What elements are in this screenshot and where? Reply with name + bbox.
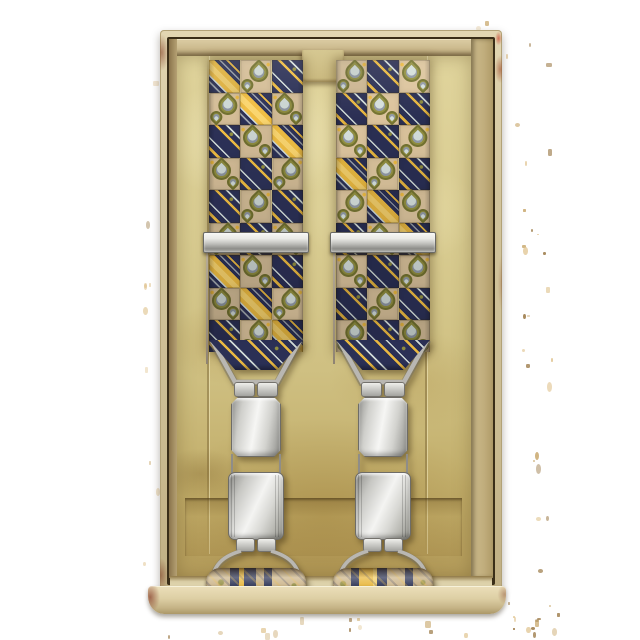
pattern-square xyxy=(336,93,367,126)
suspender-clip-right xyxy=(328,340,438,480)
pattern-square xyxy=(209,60,240,93)
dust-speckle xyxy=(144,284,147,290)
suspender-strap-left xyxy=(209,60,303,352)
dust-speckle xyxy=(349,628,352,632)
pattern-square xyxy=(240,125,271,158)
pattern-square xyxy=(367,190,398,223)
pattern-square xyxy=(336,125,367,158)
dust-speckle xyxy=(261,628,266,633)
clip-face xyxy=(358,397,408,457)
pattern-square xyxy=(367,60,398,93)
clip-back-plate xyxy=(228,472,284,540)
dust-speckle xyxy=(508,602,510,605)
dust-speckle xyxy=(546,516,549,521)
dust-speckle xyxy=(522,245,526,249)
metal-adjuster-right xyxy=(330,232,436,253)
gift-box xyxy=(160,30,502,592)
suspender-clip-left xyxy=(201,340,311,480)
dust-speckle xyxy=(536,517,541,521)
pattern-square xyxy=(209,93,240,126)
dust-speckle xyxy=(535,620,539,628)
clip-hinge xyxy=(234,382,278,397)
dust-speckle xyxy=(535,452,539,460)
dust-speckle xyxy=(529,43,531,47)
pattern-square xyxy=(240,158,271,191)
dust-speckle xyxy=(526,627,531,634)
dust-speckle xyxy=(522,349,526,353)
pattern-square xyxy=(209,125,240,158)
dust-speckle xyxy=(536,464,542,475)
dust-speckle xyxy=(144,283,147,288)
dust-speckle xyxy=(546,63,551,67)
dust-speckle xyxy=(549,605,551,607)
pattern-square xyxy=(240,93,271,126)
dust-speckle xyxy=(218,631,223,635)
dust-speckle xyxy=(533,460,536,463)
dust-speckle xyxy=(523,314,526,319)
pattern-square xyxy=(399,158,430,191)
pattern-square xyxy=(336,288,367,321)
pattern-square xyxy=(399,60,430,93)
pattern-square xyxy=(367,93,398,126)
pattern-square xyxy=(336,190,367,223)
dust-speckle xyxy=(531,229,533,232)
dust-speckle xyxy=(145,367,149,374)
dust-speckle xyxy=(546,287,550,293)
dust-speckle xyxy=(265,633,270,640)
metal-adjuster-left xyxy=(203,232,309,253)
pattern-square xyxy=(367,288,398,321)
box-front-lip xyxy=(148,586,506,614)
dust-speckle xyxy=(548,149,553,156)
pattern-square xyxy=(209,255,240,288)
pattern-square xyxy=(209,288,240,321)
clip-hinge xyxy=(361,382,405,397)
product-photo xyxy=(0,0,640,640)
dust-speckle xyxy=(535,619,539,622)
pattern-square xyxy=(336,60,367,93)
dust-speckle xyxy=(523,247,528,255)
pattern-square xyxy=(272,255,303,288)
clip-face xyxy=(231,397,281,457)
pattern-square xyxy=(367,158,398,191)
pattern-square xyxy=(367,255,398,288)
dust-speckle xyxy=(527,315,530,317)
pattern-square xyxy=(240,288,271,321)
dust-speckle xyxy=(557,613,560,618)
dust-speckle xyxy=(149,283,152,287)
pattern-square xyxy=(272,60,303,93)
dust-speckle xyxy=(551,358,553,361)
pattern-square xyxy=(209,158,240,191)
suspender-strap-right xyxy=(336,60,430,352)
dust-speckle xyxy=(485,21,489,26)
dust-speckle xyxy=(513,628,515,630)
dust-speckle xyxy=(273,630,278,638)
pattern-square xyxy=(272,93,303,126)
dust-speckle xyxy=(543,252,545,255)
dust-speckle xyxy=(429,630,433,634)
dust-speckle xyxy=(537,618,541,621)
dust-speckle xyxy=(514,617,517,622)
dust-speckle xyxy=(523,209,526,213)
pattern-square xyxy=(399,255,430,288)
dust-speckle xyxy=(358,625,363,630)
dust-speckle xyxy=(552,628,557,636)
pattern-square xyxy=(272,288,303,321)
dust-speckle xyxy=(143,307,148,315)
pattern-square xyxy=(272,190,303,223)
dust-speckle xyxy=(168,635,170,639)
pattern-square xyxy=(272,158,303,191)
dust-speckle xyxy=(526,364,531,369)
pattern-square xyxy=(399,125,430,158)
pattern-square xyxy=(240,190,271,223)
dust-speckle xyxy=(153,81,158,86)
dust-speckle xyxy=(515,123,520,127)
pattern-square xyxy=(240,255,271,288)
box-wall-right xyxy=(471,39,493,578)
dust-speckle xyxy=(464,633,467,639)
pattern-square xyxy=(399,190,430,223)
clip-back-plate xyxy=(355,472,411,540)
pattern-square xyxy=(240,60,271,93)
dust-speckle xyxy=(506,54,509,59)
dust-speckle xyxy=(525,161,528,166)
dust-speckle xyxy=(547,382,552,393)
dust-speckle xyxy=(537,234,540,236)
pattern-square xyxy=(336,255,367,288)
pattern-square xyxy=(209,190,240,223)
pattern-square xyxy=(399,93,430,126)
dust-speckle xyxy=(149,461,151,466)
pattern-square xyxy=(399,288,430,321)
dust-speckle xyxy=(533,632,537,638)
dust-speckle xyxy=(513,616,516,618)
box-wall-left xyxy=(169,39,177,578)
dust-speckle xyxy=(146,221,150,228)
pattern-square xyxy=(367,125,398,158)
dust-speckle xyxy=(538,569,543,573)
pattern-square xyxy=(336,158,367,191)
dust-speckle xyxy=(143,562,146,567)
pattern-square xyxy=(272,125,303,158)
dust-speckle xyxy=(531,627,535,630)
